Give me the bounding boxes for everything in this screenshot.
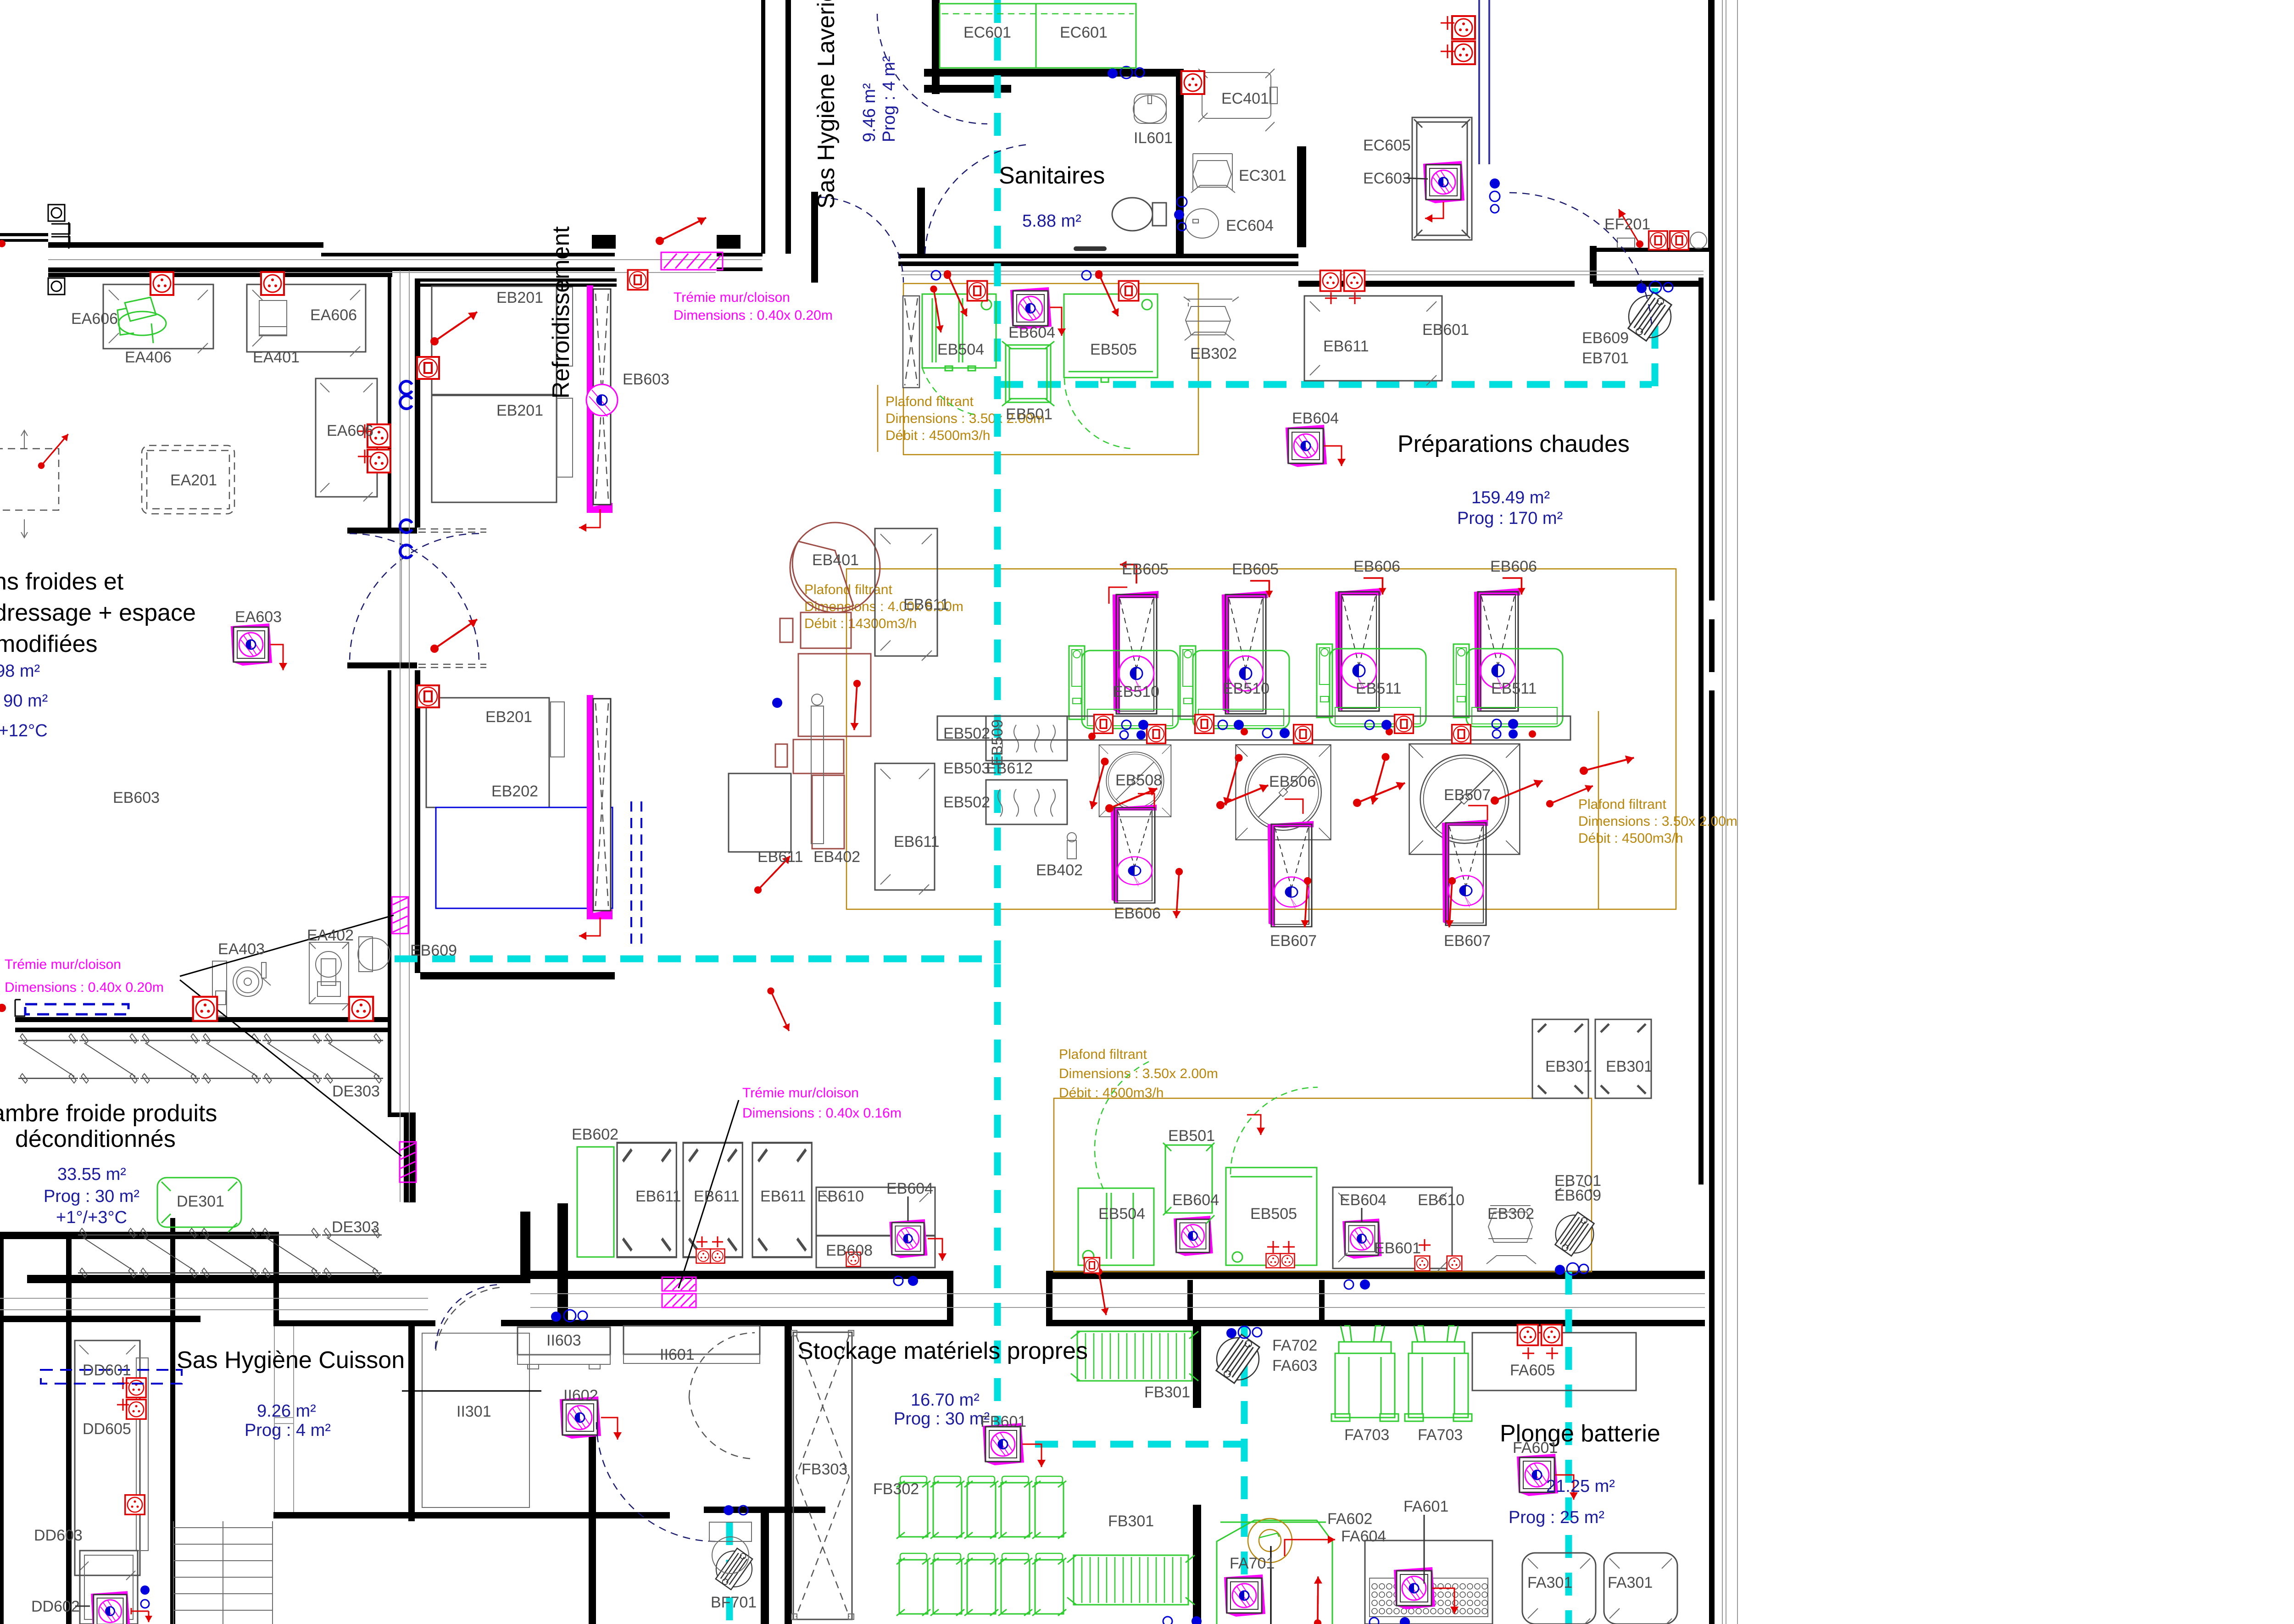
- svg-text:EB504: EB504: [1098, 1205, 1145, 1223]
- svg-text:Sanitaires: Sanitaires: [999, 162, 1105, 189]
- svg-text:EB507: EB507: [1444, 786, 1491, 804]
- svg-text:Plafond filtrant: Plafond filtrant: [1059, 1047, 1147, 1062]
- svg-text:FB302: FB302: [873, 1480, 919, 1498]
- svg-text:Prog : 25 m²: Prog : 25 m²: [1509, 1508, 1604, 1527]
- svg-text:Dimensions : 0.40x 0.20m: Dimensions : 0.40x 0.20m: [674, 308, 833, 323]
- svg-text:EC605: EC605: [1363, 137, 1411, 154]
- svg-text:EA201: EA201: [170, 472, 217, 489]
- svg-text:EC601: EC601: [1060, 24, 1108, 41]
- svg-text:EB604: EB604: [1292, 410, 1339, 427]
- svg-text:FB601: FB601: [980, 1413, 1026, 1430]
- svg-text:EB611: EB611: [635, 1188, 681, 1205]
- svg-text:EB609: EB609: [1554, 1187, 1601, 1204]
- svg-text:II301: II301: [457, 1403, 491, 1420]
- svg-text:Débit : 4500m3/h: Débit : 4500m3/h: [1578, 831, 1683, 846]
- svg-text:EB502: EB502: [943, 725, 990, 742]
- svg-text:EB505: EB505: [1090, 341, 1137, 358]
- svg-text:FA605: FA605: [1510, 1362, 1555, 1379]
- svg-text:modifiées: modifiées: [0, 631, 98, 657]
- svg-text:Sas Hygiène Laverie: Sas Hygiène Laverie: [813, 0, 840, 209]
- svg-text:EB604: EB604: [1008, 324, 1055, 341]
- svg-text:EB201: EB201: [496, 289, 543, 306]
- svg-text:FA702: FA702: [1272, 1337, 1317, 1354]
- svg-text:DD601: DD601: [83, 1362, 131, 1379]
- svg-text:EB609: EB609: [410, 942, 457, 959]
- svg-text:Prog : 30 m²: Prog : 30 m²: [44, 1187, 139, 1206]
- svg-text:EB611: EB611: [694, 1188, 740, 1205]
- svg-text:EB503: EB503: [943, 760, 990, 777]
- svg-text:21.25 m²: 21.25 m²: [1546, 1477, 1615, 1496]
- svg-text:DD602: DD602: [31, 1598, 80, 1615]
- svg-text:Débit : 4500m3/h: Débit : 4500m3/h: [1059, 1085, 1164, 1101]
- svg-text:FA603: FA603: [1272, 1357, 1317, 1374]
- svg-text:Prog : 30 m²: Prog : 30 m²: [894, 1409, 990, 1429]
- svg-text:EA401: EA401: [253, 349, 300, 366]
- svg-text:EB607: EB607: [1444, 932, 1491, 950]
- svg-text:+1°/+3°C: +1°/+3°C: [56, 1208, 127, 1227]
- svg-text:EB301: EB301: [1606, 1058, 1653, 1075]
- svg-text:EA402: EA402: [307, 927, 354, 944]
- svg-text:EB604: EB604: [1172, 1191, 1219, 1209]
- svg-text:DD605: DD605: [83, 1420, 131, 1438]
- svg-text:EB611: EB611: [1323, 338, 1369, 355]
- svg-text:EA606: EA606: [327, 422, 373, 439]
- svg-text:EA403: EA403: [218, 940, 265, 958]
- svg-text:EB202: EB202: [491, 783, 538, 800]
- svg-text:Dimensions : 0.40x 0.20m: Dimensions : 0.40x 0.20m: [5, 980, 164, 995]
- svg-text:EA606: EA606: [71, 310, 118, 328]
- svg-text:BF701: BF701: [711, 1594, 757, 1611]
- svg-text:FA601: FA601: [1403, 1498, 1448, 1515]
- svg-text:EB201: EB201: [496, 402, 543, 419]
- svg-text:Débit : 14300m3/h: Débit : 14300m3/h: [804, 616, 917, 631]
- svg-text:EB501: EB501: [1006, 406, 1052, 423]
- svg-text:EB604: EB604: [1340, 1191, 1386, 1209]
- svg-text:EB611: EB611: [894, 833, 940, 851]
- svg-text:EB610: EB610: [817, 1188, 864, 1205]
- svg-text:Préparations chaudes: Préparations chaudes: [1398, 431, 1630, 457]
- svg-text:EB605: EB605: [1122, 561, 1169, 578]
- svg-text:déconditionnés: déconditionnés: [15, 1126, 176, 1152]
- svg-text:FA301: FA301: [1527, 1574, 1572, 1591]
- svg-text:IL601: IL601: [1134, 129, 1173, 147]
- svg-text:Stockage matériels propres: Stockage matériels propres: [797, 1338, 1088, 1364]
- svg-text:FA703: FA703: [1418, 1426, 1463, 1444]
- svg-text:EB505: EB505: [1250, 1205, 1297, 1223]
- svg-text:Trémie mur/cloison: Trémie mur/cloison: [674, 290, 790, 305]
- svg-text:DE303: DE303: [332, 1083, 380, 1100]
- svg-text:EF201: EF201: [1604, 216, 1650, 233]
- svg-text:EB402: EB402: [813, 848, 860, 866]
- svg-text:FA703: FA703: [1344, 1426, 1389, 1444]
- svg-text:DD603: DD603: [34, 1527, 83, 1544]
- svg-text:EC604: EC604: [1226, 217, 1274, 234]
- svg-text:EB610: EB610: [1418, 1191, 1464, 1209]
- svg-text:Plafond filtrant: Plafond filtrant: [1578, 797, 1666, 812]
- svg-text:16.70 m²: 16.70 m²: [911, 1390, 980, 1410]
- svg-text:EB611: EB611: [757, 848, 803, 866]
- svg-text:EB607: EB607: [1270, 932, 1317, 950]
- svg-text:EA603: EA603: [235, 608, 282, 626]
- svg-text:EB504: EB504: [937, 341, 984, 358]
- svg-text:EB301: EB301: [1545, 1058, 1592, 1075]
- svg-text:EB509: EB509: [989, 719, 1006, 766]
- svg-text:EC401: EC401: [1221, 90, 1269, 107]
- svg-text:159.49 m²: 159.49 m²: [1471, 488, 1550, 507]
- svg-text:EB606: EB606: [1114, 905, 1161, 922]
- svg-text:Prog : 4 m²: Prog : 4 m²: [880, 56, 899, 142]
- svg-text:FA701: FA701: [1230, 1555, 1275, 1572]
- svg-text:ambre froide produits: ambre froide produits: [0, 1100, 217, 1127]
- svg-text:EB601: EB601: [1422, 321, 1469, 339]
- svg-text:EC603: EC603: [1363, 170, 1411, 187]
- svg-text:Dimensions : 3.50x 2.00m: Dimensions : 3.50x 2.00m: [1578, 814, 1737, 829]
- svg-text:EB603: EB603: [623, 371, 669, 388]
- svg-text:: 90 m²: : 90 m²: [0, 691, 48, 711]
- svg-text:EB510: EB510: [1113, 683, 1159, 701]
- svg-text:Débit : 4500m3/h: Débit : 4500m3/h: [885, 428, 990, 443]
- svg-text:EB611: EB611: [903, 596, 949, 613]
- svg-text:Dimensions : 3.50x 2.00m: Dimensions : 3.50x 2.00m: [1059, 1066, 1218, 1081]
- svg-text:Trémie mur/cloison: Trémie mur/cloison: [5, 957, 121, 972]
- svg-text:FA604: FA604: [1341, 1528, 1386, 1545]
- svg-text:DE301: DE301: [177, 1193, 224, 1210]
- svg-text:EB606: EB606: [1353, 558, 1400, 575]
- svg-text:EB601: EB601: [1374, 1240, 1421, 1257]
- svg-text:Refroidissement: Refroidissement: [548, 226, 574, 399]
- svg-text:Prog : 170 m²: Prog : 170 m²: [1457, 509, 1563, 528]
- svg-text:98 m²: 98 m²: [0, 662, 40, 681]
- svg-text:FB301: FB301: [1108, 1513, 1154, 1530]
- svg-text:DE303: DE303: [332, 1218, 379, 1236]
- svg-text:9.26 m²: 9.26 m²: [257, 1402, 316, 1421]
- svg-text:FB301: FB301: [1144, 1384, 1190, 1401]
- svg-text:EB506: EB506: [1269, 773, 1316, 790]
- svg-text:II603: II603: [546, 1332, 581, 1349]
- svg-text:EB302: EB302: [1190, 345, 1237, 362]
- svg-text:EB608: EB608: [826, 1242, 873, 1259]
- svg-text:Sas Hygiène Cuisson: Sas Hygiène Cuisson: [177, 1347, 405, 1374]
- svg-text:EB609: EB609: [1582, 329, 1629, 347]
- svg-text:dressage + espace: dressage + espace: [0, 600, 196, 626]
- svg-text:EB604: EB604: [886, 1180, 933, 1197]
- svg-text:EB501: EB501: [1168, 1127, 1215, 1145]
- svg-text:EA406: EA406: [125, 349, 172, 366]
- svg-text:EB701: EB701: [1582, 350, 1629, 367]
- svg-text:FB303: FB303: [802, 1461, 847, 1478]
- svg-text:EB603: EB603: [113, 789, 160, 806]
- svg-text:EB401: EB401: [812, 551, 859, 569]
- svg-text:EB602: EB602: [572, 1126, 618, 1143]
- svg-text:EB201: EB201: [485, 708, 532, 726]
- svg-text:EB611: EB611: [760, 1188, 806, 1205]
- svg-text:FA602: FA602: [1327, 1510, 1372, 1528]
- svg-text:33.55 m²: 33.55 m²: [57, 1165, 126, 1184]
- svg-text:EA606: EA606: [310, 306, 357, 324]
- svg-text:FA601: FA601: [1513, 1439, 1558, 1457]
- svg-text:II602: II602: [563, 1387, 598, 1404]
- svg-text:EB511: EB511: [1356, 680, 1402, 697]
- svg-text:EB508: EB508: [1115, 772, 1162, 789]
- svg-text:EC301: EC301: [1239, 167, 1286, 184]
- svg-text:/+12°C: /+12°C: [0, 721, 48, 740]
- svg-text:Dimensions : 0.40x 0.16m: Dimensions : 0.40x 0.16m: [742, 1106, 902, 1121]
- svg-text:EB510: EB510: [1223, 680, 1269, 697]
- svg-text:Prog : 4 m²: Prog : 4 m²: [245, 1421, 331, 1440]
- svg-text:EB606: EB606: [1490, 558, 1537, 575]
- svg-text:EB511: EB511: [1491, 680, 1537, 697]
- svg-text:9.46 m²: 9.46 m²: [860, 83, 879, 142]
- svg-text:EB605: EB605: [1232, 561, 1279, 578]
- svg-text:II601: II601: [660, 1346, 695, 1363]
- svg-text:EB502: EB502: [943, 794, 990, 811]
- svg-text:Trémie mur/cloison: Trémie mur/cloison: [742, 1085, 859, 1101]
- svg-text:FA301: FA301: [1608, 1574, 1653, 1591]
- svg-text:EC601: EC601: [963, 24, 1011, 41]
- svg-text:5.88 m²: 5.88 m²: [1022, 211, 1081, 231]
- svg-text:ns froides et: ns froides et: [0, 568, 124, 595]
- svg-text:EB302: EB302: [1487, 1205, 1534, 1223]
- svg-text:EB402: EB402: [1036, 862, 1083, 879]
- svg-text:Plafond filtrant: Plafond filtrant: [885, 394, 974, 409]
